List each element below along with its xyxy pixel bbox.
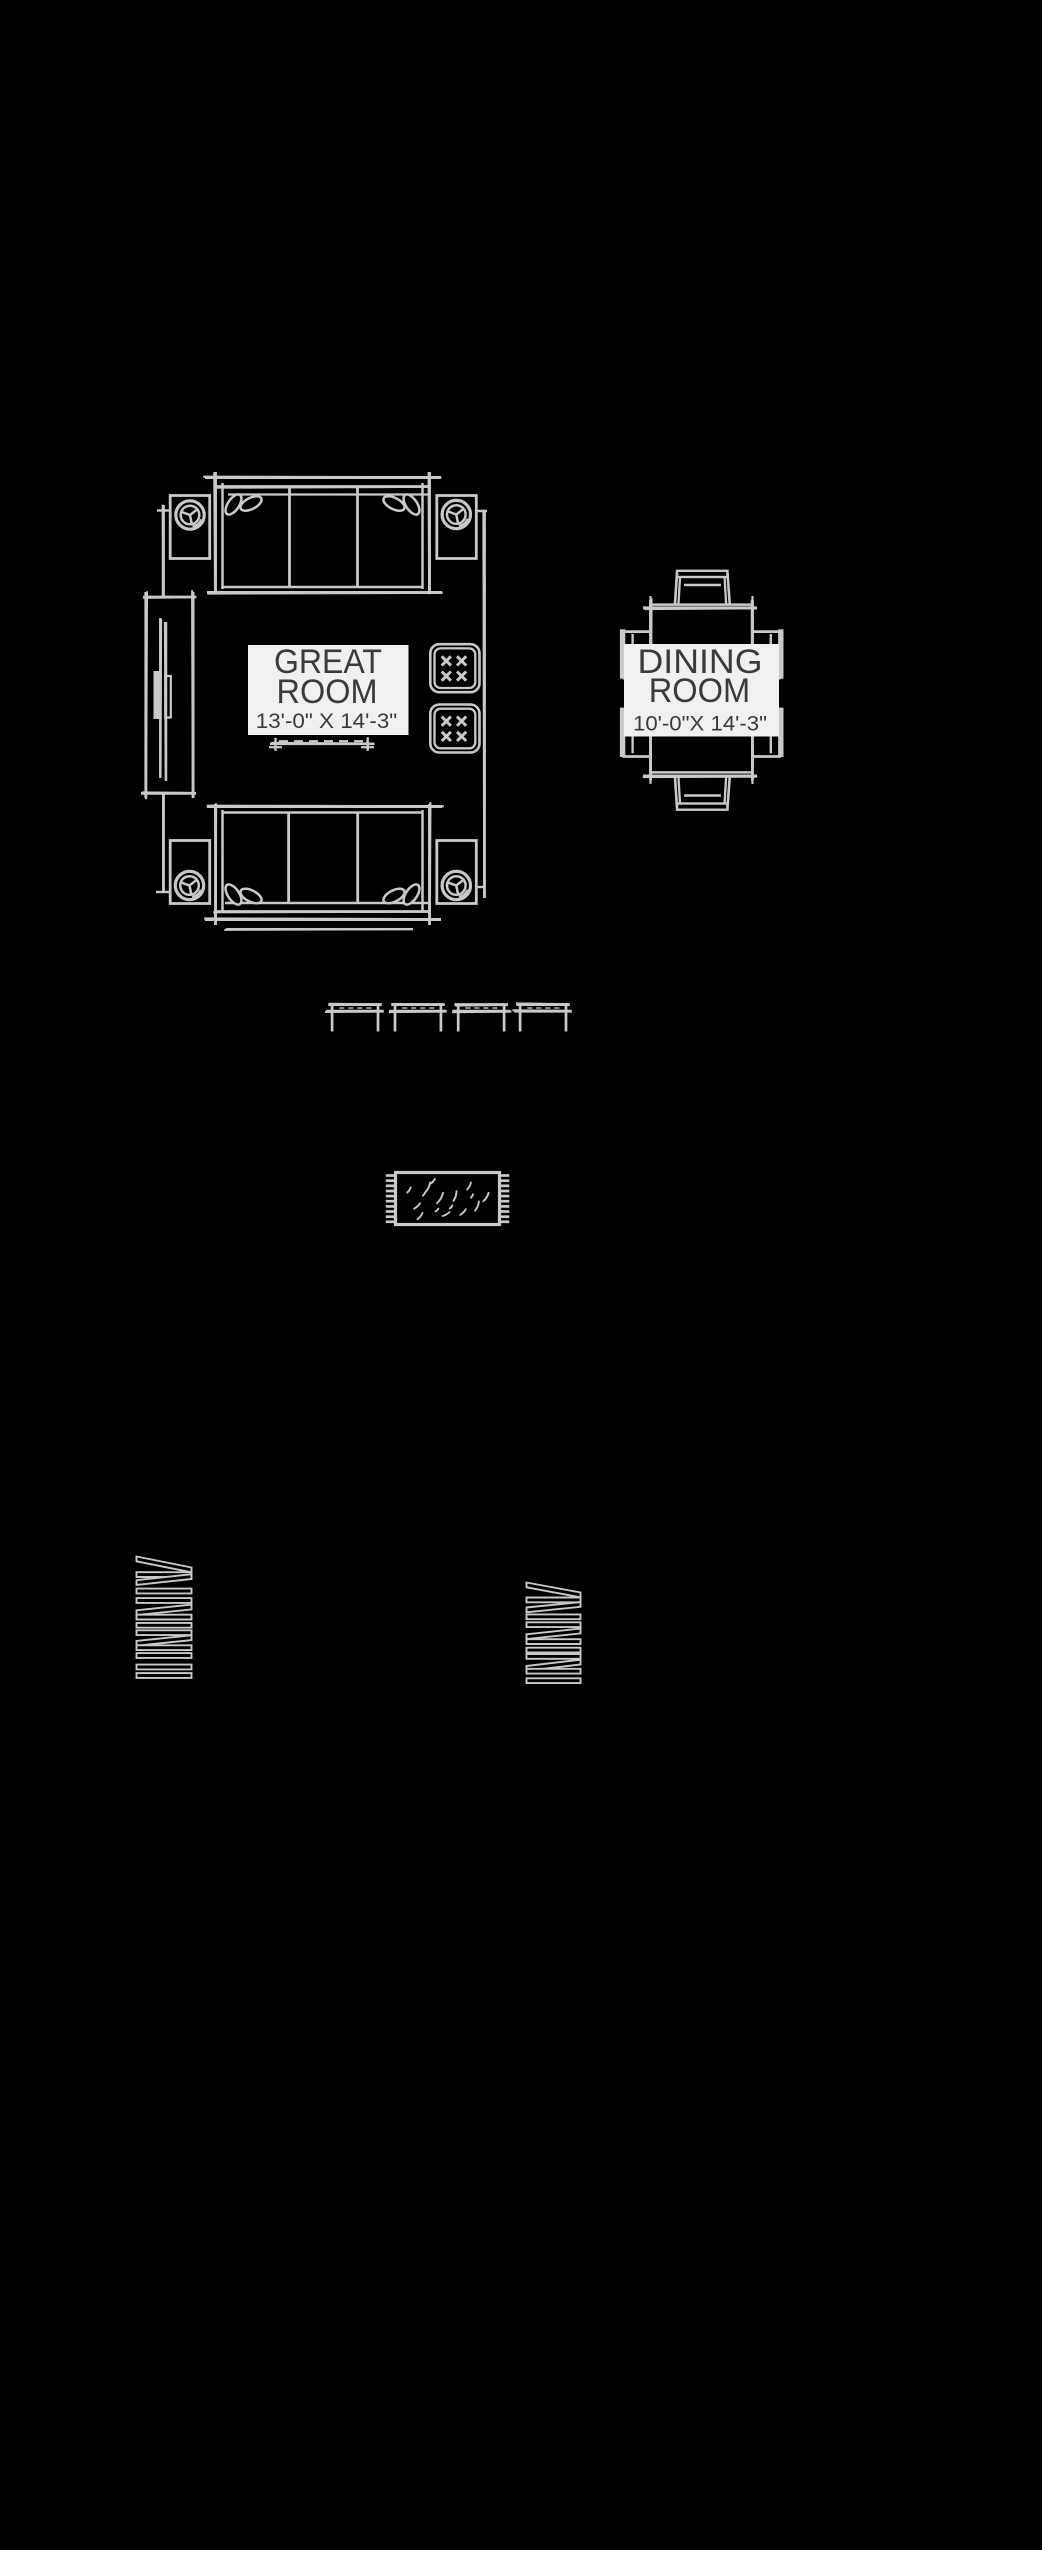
svg-text:13'-0" X 14'-3": 13'-0" X 14'-3" (256, 709, 398, 733)
svg-text:10'-0"X 14'-3": 10'-0"X 14'-3" (633, 711, 767, 735)
svg-text:ROOM: ROOM (649, 672, 751, 710)
svg-text:ROOM: ROOM (277, 673, 378, 711)
